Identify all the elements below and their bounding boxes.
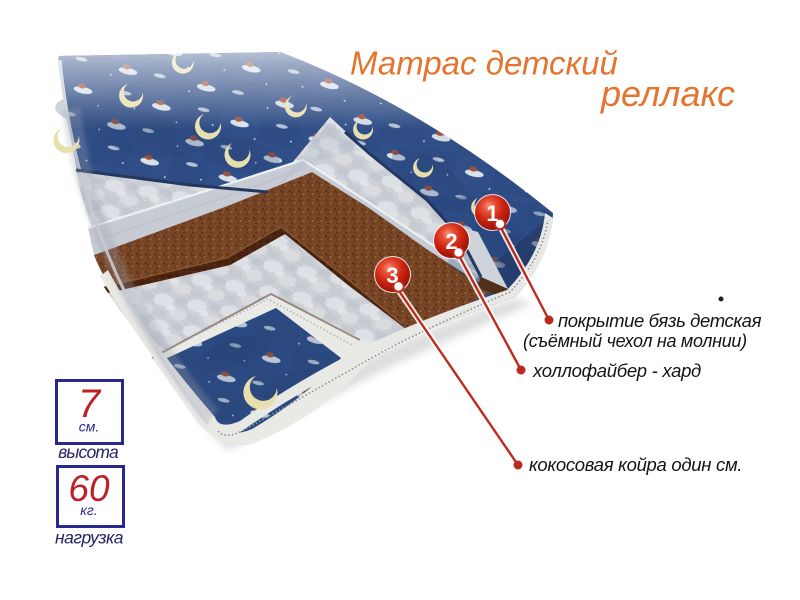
svg-text:Матрас детский: Матрас детский <box>350 45 618 82</box>
svg-text:см.: см. <box>79 419 100 435</box>
svg-text:2: 2 <box>445 229 457 254</box>
svg-text:(съёмный чехол на молнии): (съёмный чехол на молнии) <box>523 331 747 351</box>
svg-text:1: 1 <box>486 201 498 226</box>
svg-text:высота: высота <box>58 442 119 462</box>
svg-text:покрытие бязь детская: покрытие бязь детская <box>558 310 762 331</box>
svg-text:реллакс: реллакс <box>600 73 735 114</box>
svg-text:кокосовая койра один см.: кокосовая койра один см. <box>529 454 742 475</box>
svg-text:холлофайбер - хард: холлофайбер - хард <box>532 360 701 381</box>
svg-text:3: 3 <box>386 263 398 288</box>
svg-text:кг.: кг. <box>80 502 97 518</box>
svg-text:нагрузка: нагрузка <box>55 528 124 548</box>
